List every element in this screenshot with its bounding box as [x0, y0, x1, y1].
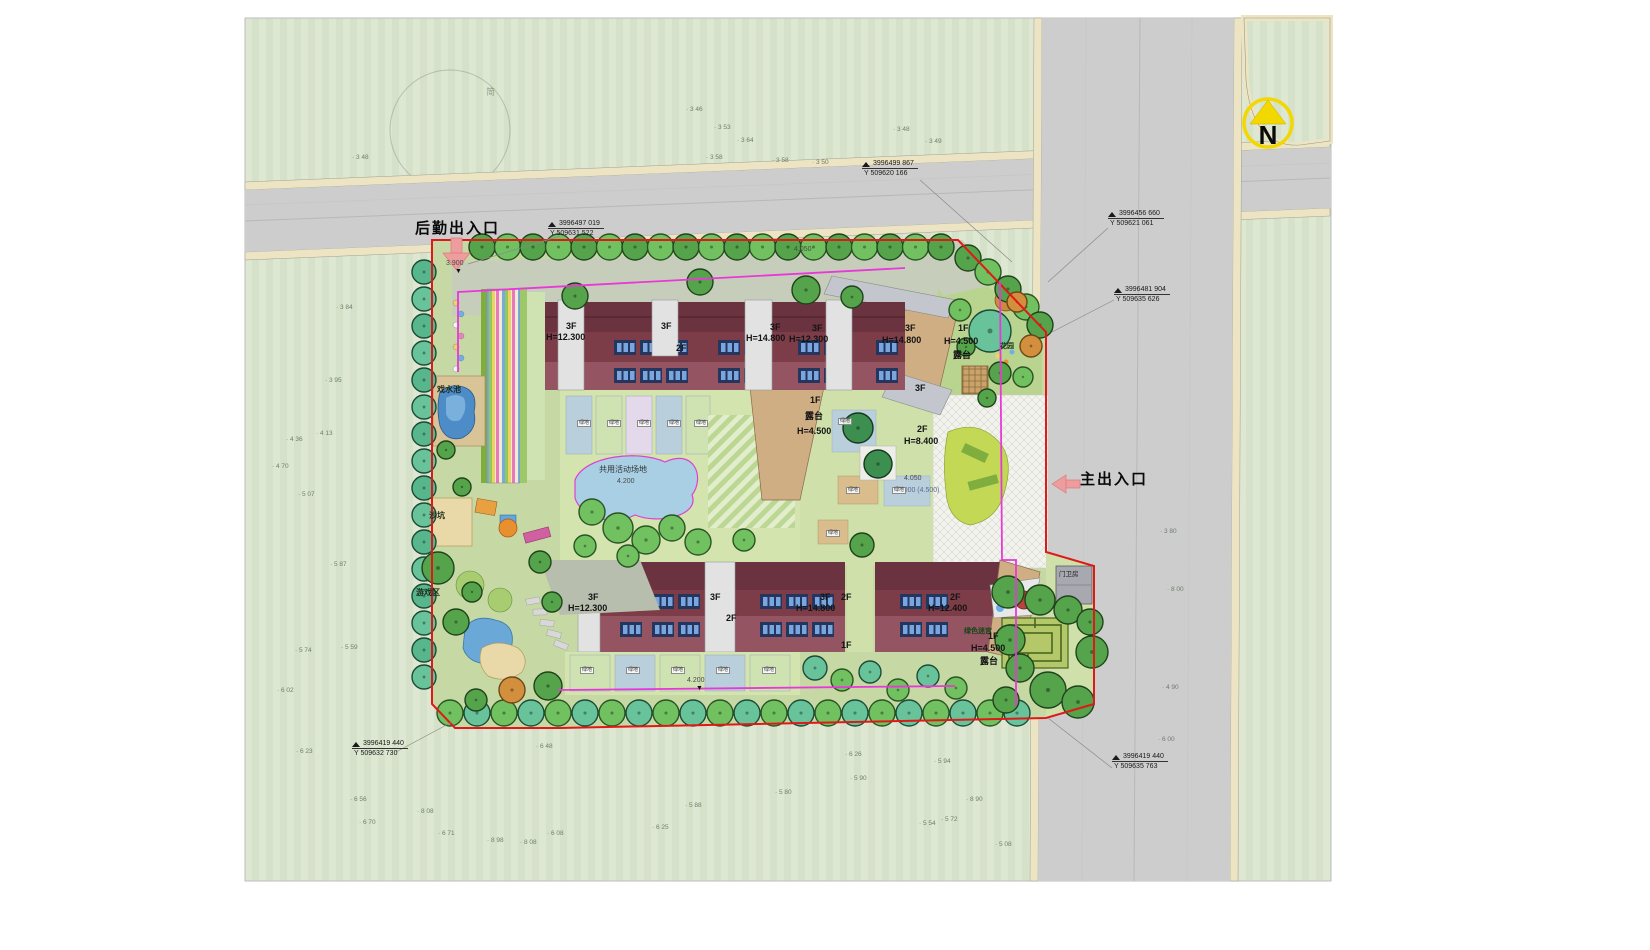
north-letter: N — [1259, 120, 1278, 150]
site-plan-canvas: N — [0, 0, 1650, 950]
track-lawn — [527, 292, 545, 480]
site-plan-page: N — [0, 0, 1650, 950]
corner-green-patch — [1244, 18, 1330, 145]
right-road — [1030, 18, 1242, 881]
planting-beds-top — [566, 396, 710, 454]
rainbow-track — [487, 289, 520, 483]
wading-pool — [433, 376, 485, 446]
north-building-block — [540, 300, 905, 390]
track-hedge — [520, 289, 527, 483]
